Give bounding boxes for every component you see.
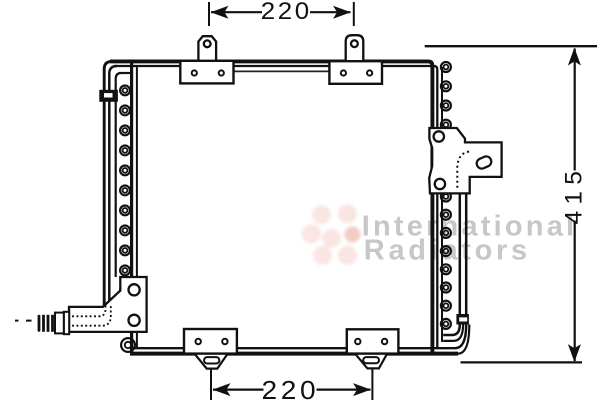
svg-text:415: 415 [560,165,587,224]
svg-text:220: 220 [261,0,312,25]
svg-text:220: 220 [261,376,319,400]
